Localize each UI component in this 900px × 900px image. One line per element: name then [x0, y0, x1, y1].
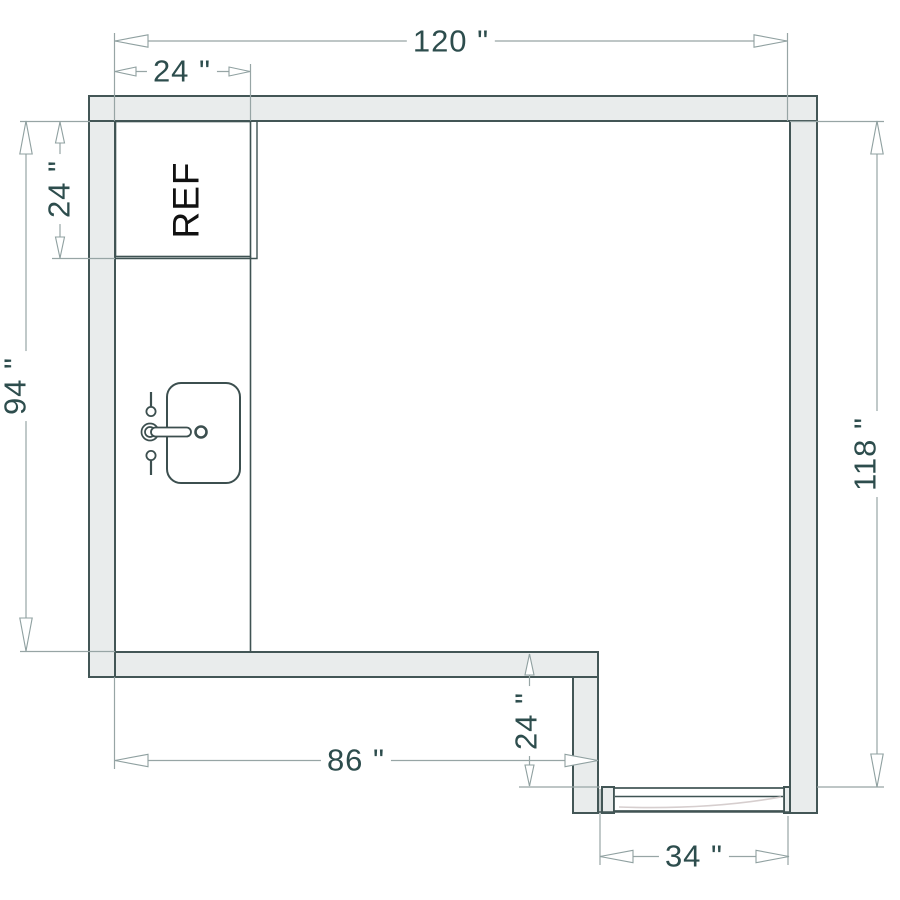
floor-plan-canvas	[0, 0, 900, 900]
floor-plan: 120 " 24 " 24 " 94 " 118 " 86 " 24 " 34 …	[0, 0, 900, 900]
arrow-24top-left	[115, 67, 136, 76]
sink-drain	[196, 427, 207, 438]
arrow-24left-up	[56, 122, 65, 143]
arrow-24left-down	[56, 237, 65, 258]
dim-label-step-depth: 24 "	[510, 686, 543, 756]
arrow-118-up	[871, 121, 883, 154]
step-wall	[573, 677, 598, 813]
dim-label-total-width: 120 "	[407, 25, 495, 58]
refrigerator-label: REF	[168, 158, 205, 243]
dim-label-door-width: 34 "	[659, 840, 729, 873]
dim-label-bottom-left-width: 86 "	[321, 744, 391, 777]
faucet-spout	[151, 428, 191, 437]
right-wall	[790, 121, 817, 813]
arrow-94-down	[20, 618, 32, 651]
arrow-120-left	[115, 35, 148, 47]
dim-label-right-height: 118 "	[849, 411, 882, 497]
door-jamb-left	[602, 787, 614, 813]
faucet-handle-top	[146, 407, 155, 416]
faucet-handle-bottom	[146, 451, 155, 460]
door	[598, 788, 790, 812]
arrow-34-right	[756, 850, 789, 862]
door-jamb-right	[784, 787, 790, 813]
arrow-34-left	[600, 850, 633, 862]
dim-label-left-height: 94 "	[0, 351, 32, 421]
left-wall	[89, 121, 115, 677]
sink-symbol	[142, 383, 241, 483]
arrow-24top-right	[229, 67, 250, 76]
dim-label-fridge-height: 24 "	[43, 154, 76, 224]
dim-label-counter-depth: 24 "	[147, 55, 217, 88]
arrow-120-right	[754, 35, 787, 47]
arrow-94-up	[20, 121, 32, 154]
arrow-118-down	[871, 754, 883, 787]
arrow-86-left	[115, 754, 148, 766]
arrow-24step-down	[525, 765, 534, 786]
top-wall	[89, 96, 817, 121]
